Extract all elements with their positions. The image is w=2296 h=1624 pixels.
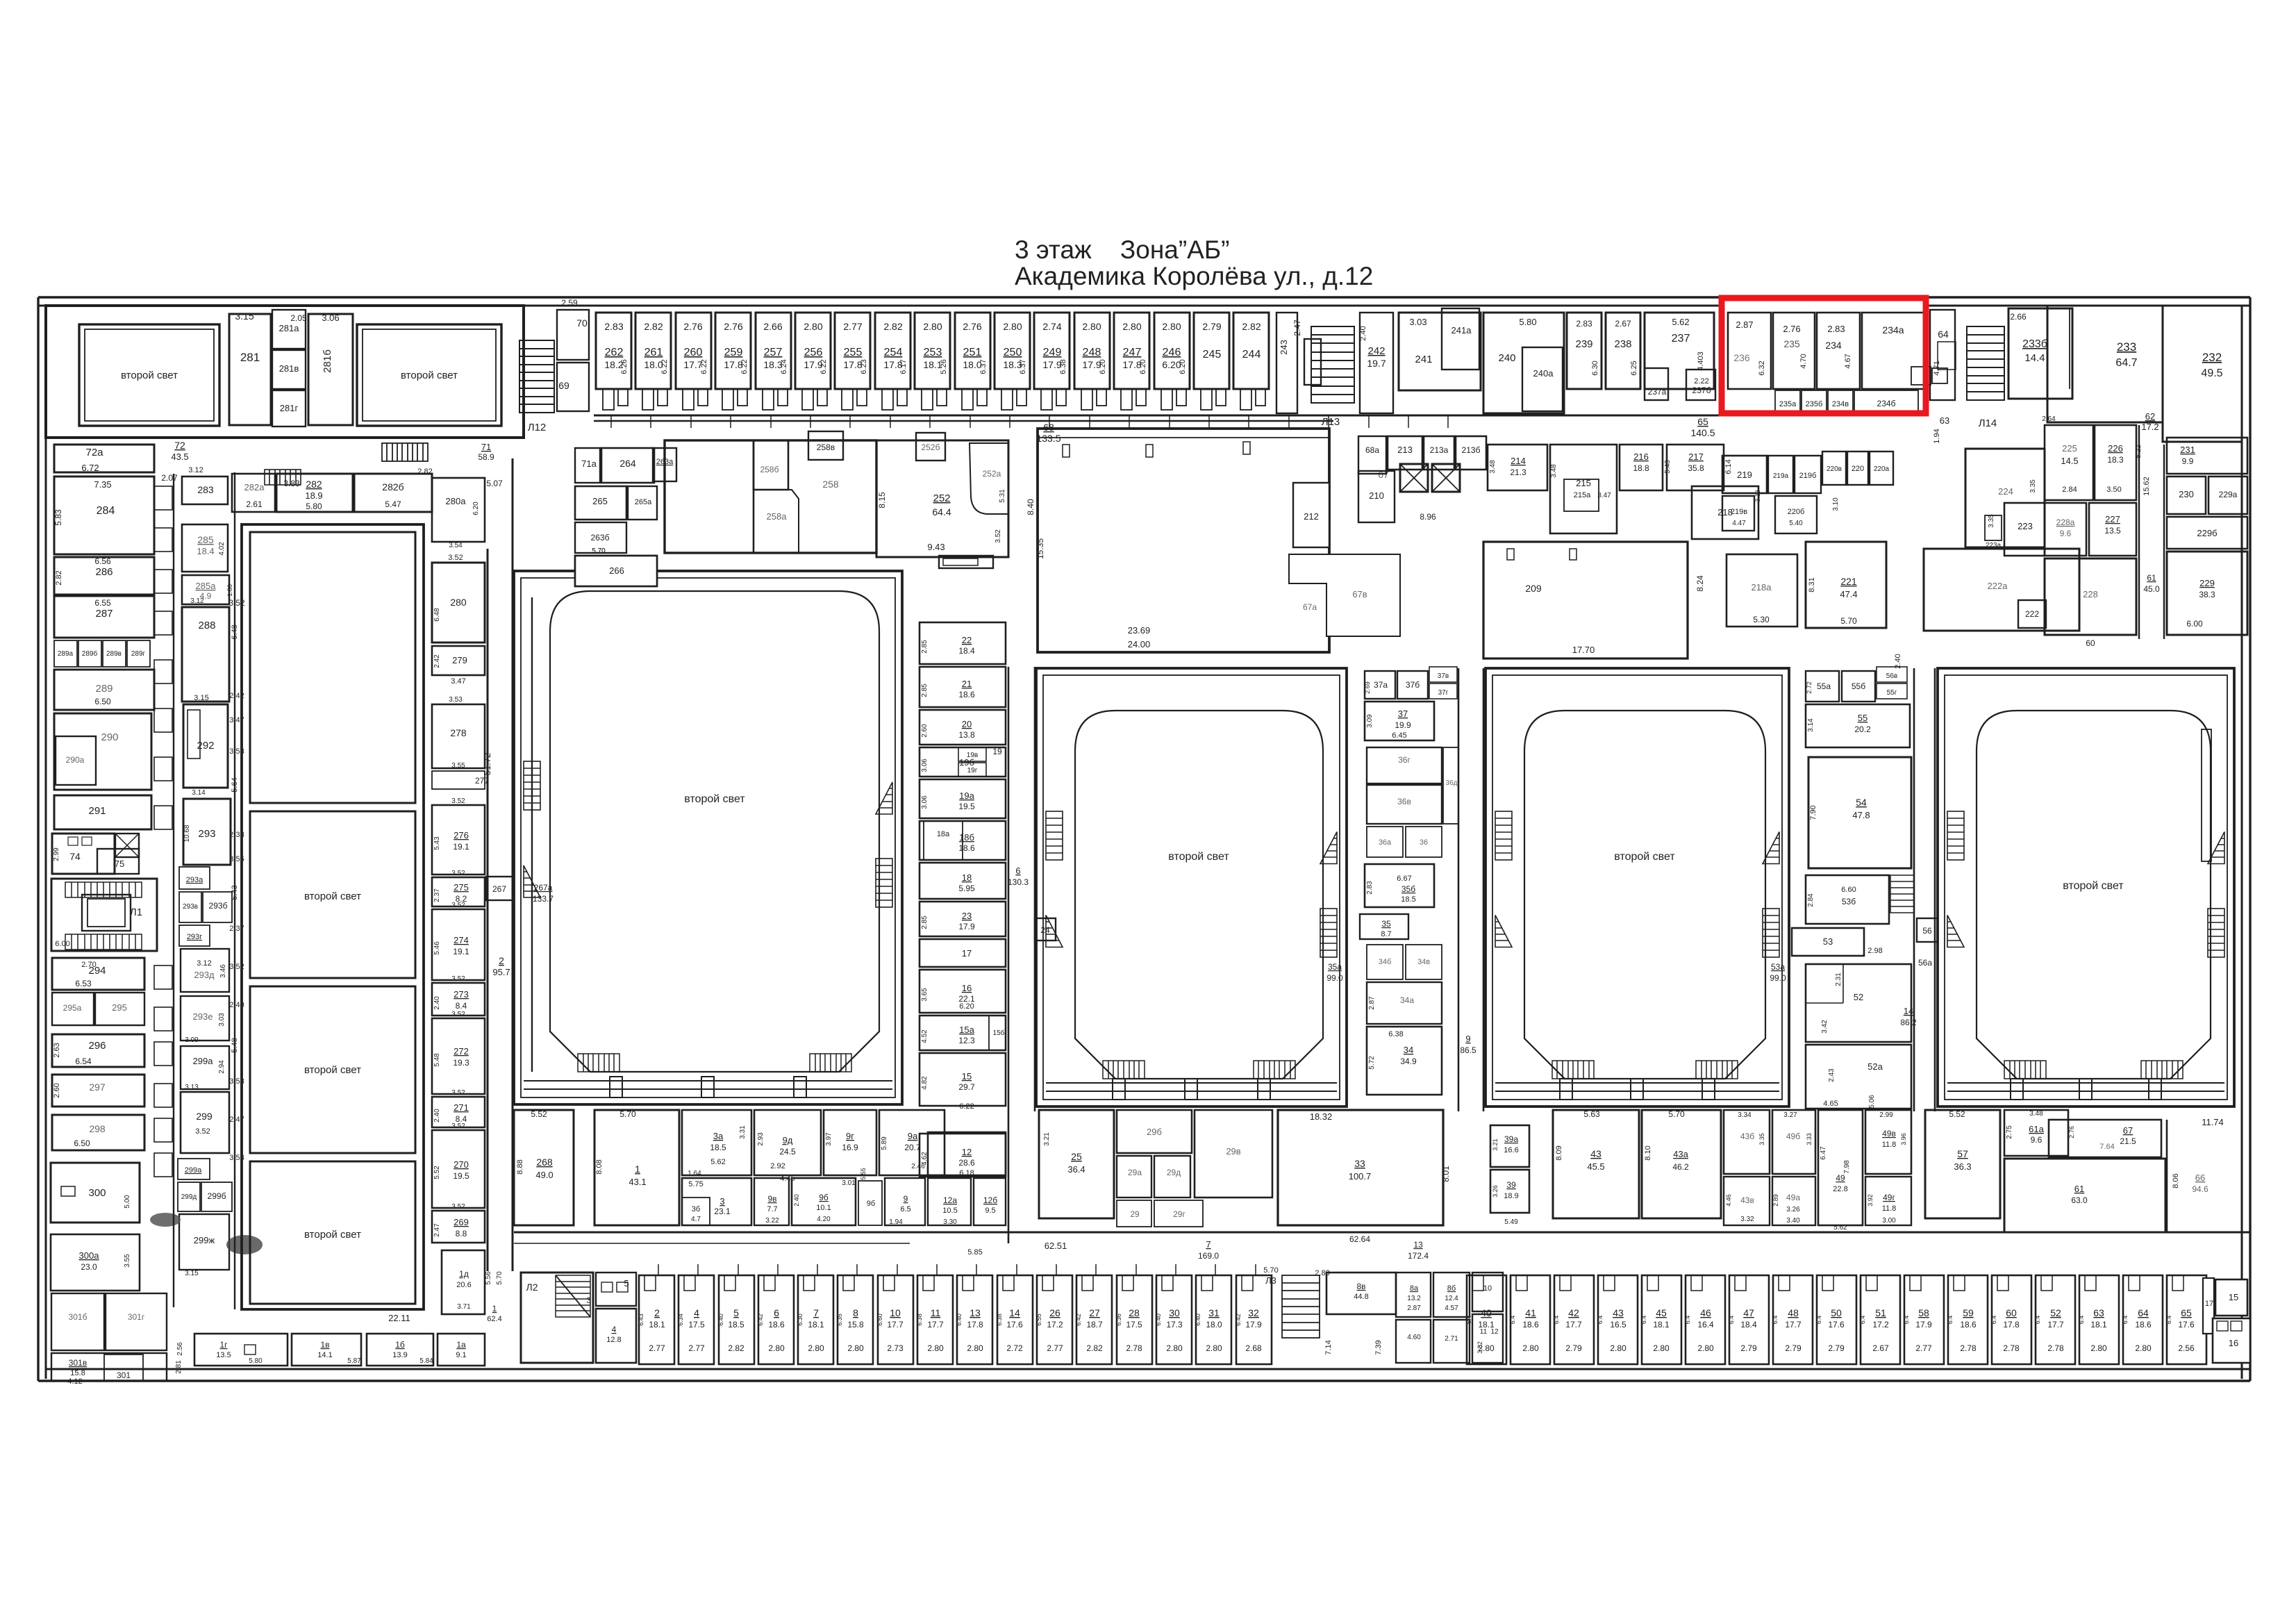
svg-text:5.48: 5.48 [433, 1053, 441, 1067]
svg-text:210: 210 [1369, 490, 1384, 501]
svg-text:2.70: 2.70 [81, 961, 96, 969]
svg-text:299: 299 [196, 1111, 213, 1122]
svg-text:241: 241 [1415, 354, 1432, 365]
svg-text:216: 216 [1633, 451, 1649, 462]
svg-text:39а: 39а [1504, 1134, 1518, 1144]
svg-text:61: 61 [2147, 573, 2156, 583]
svg-text:6.22: 6.22 [700, 359, 708, 374]
svg-text:2.80: 2.80 [847, 1343, 864, 1353]
svg-text:228: 228 [2083, 589, 2098, 599]
svg-text:37: 37 [1398, 709, 1408, 719]
svg-text:11: 11 [931, 1307, 941, 1318]
svg-text:224: 224 [1998, 486, 2013, 497]
svg-text:8.7: 8.7 [1381, 930, 1391, 938]
svg-text:6.48: 6.48 [433, 608, 441, 622]
svg-text:4.12: 4.12 [67, 1377, 82, 1386]
svg-text:34а: 34а [1400, 995, 1414, 1005]
svg-text:279: 279 [452, 655, 467, 665]
svg-text:19.1: 19.1 [453, 842, 469, 852]
svg-text:2.40: 2.40 [433, 996, 441, 1010]
svg-text:8в: 8в [1356, 1282, 1365, 1291]
svg-text:2.84: 2.84 [2062, 486, 2077, 494]
svg-text:19а: 19а [959, 790, 974, 801]
svg-text:63: 63 [2093, 1307, 2104, 1318]
svg-text:6.50: 6.50 [74, 1138, 90, 1148]
svg-text:19.9: 19.9 [1395, 720, 1411, 730]
svg-text:2.72: 2.72 [1806, 681, 1813, 694]
svg-text:6: 6 [774, 1307, 779, 1318]
svg-text:41: 41 [1525, 1307, 1536, 1318]
svg-text:2.83: 2.83 [1576, 319, 1592, 329]
svg-text:6.32: 6.32 [1758, 361, 1766, 375]
svg-text:293в: 293в [183, 903, 198, 911]
svg-text:293г: 293г [187, 933, 202, 941]
svg-text:5.70: 5.70 [592, 547, 606, 555]
svg-text:16: 16 [962, 983, 972, 993]
svg-text:99.0: 99.0 [1770, 973, 1786, 983]
svg-text:5.56: 5.56 [485, 1271, 492, 1285]
svg-text:2.82: 2.82 [728, 1343, 744, 1353]
svg-text:6.4: 6.4 [1859, 1316, 1866, 1325]
svg-text:21: 21 [962, 679, 972, 689]
svg-text:250: 250 [1004, 347, 1022, 358]
svg-text:6.20: 6.20 [1099, 359, 1107, 374]
svg-text:56: 56 [1922, 926, 1932, 936]
svg-text:15.62: 15.62 [2143, 477, 2151, 496]
svg-text:5.62: 5.62 [1672, 317, 1689, 327]
svg-text:15: 15 [2229, 1292, 2238, 1302]
svg-text:252б: 252б [922, 442, 940, 452]
svg-text:2.80: 2.80 [923, 321, 942, 332]
svg-text:18б: 18б [959, 832, 974, 843]
svg-text:3.30: 3.30 [943, 1218, 957, 1226]
svg-text:2.80: 2.80 [1003, 321, 1022, 332]
svg-text:3.12: 3.12 [190, 597, 204, 605]
svg-text:2.87: 2.87 [1407, 1304, 1421, 1312]
svg-text:286: 286 [95, 566, 113, 578]
svg-text:34б: 34б [1379, 958, 1392, 966]
svg-text:299а: 299а [193, 1056, 214, 1066]
svg-text:27: 27 [1089, 1307, 1100, 1318]
svg-text:3.21: 3.21 [1043, 1132, 1051, 1146]
svg-text:2.37: 2.37 [229, 925, 244, 933]
svg-text:2.60: 2.60 [921, 724, 929, 738]
svg-text:7.90: 7.90 [1809, 805, 1817, 820]
svg-text:9: 9 [1465, 1034, 1470, 1044]
svg-text:3.71: 3.71 [457, 1303, 471, 1311]
svg-text:2.82: 2.82 [55, 570, 63, 585]
svg-text:2.79: 2.79 [1740, 1343, 1757, 1353]
svg-text:95.7: 95.7 [492, 967, 510, 977]
svg-text:6.38: 6.38 [1059, 359, 1067, 374]
svg-text:2.80: 2.80 [2090, 1343, 2107, 1353]
svg-text:3.12: 3.12 [188, 466, 203, 474]
svg-text:2.77: 2.77 [649, 1343, 665, 1353]
svg-text:2.77: 2.77 [1047, 1343, 1063, 1353]
svg-text:2.64: 2.64 [2042, 415, 2056, 423]
svg-text:17.9: 17.9 [958, 922, 975, 931]
svg-text:215а: 215а [1574, 491, 1591, 499]
svg-text:1в: 1в [320, 1340, 329, 1350]
svg-text:2.80: 2.80 [1166, 1343, 1183, 1353]
svg-text:2.82: 2.82 [883, 321, 902, 332]
svg-text:18.4: 18.4 [1740, 1320, 1757, 1329]
svg-text:4.70: 4.70 [1799, 354, 1808, 368]
svg-text:13.5: 13.5 [216, 1351, 231, 1359]
svg-text:3.52: 3.52 [451, 797, 465, 805]
svg-text:2.40: 2.40 [229, 1001, 244, 1009]
svg-text:12.4: 12.4 [1445, 1295, 1458, 1302]
svg-text:5.00: 5.00 [124, 1195, 131, 1209]
svg-text:2.80: 2.80 [2135, 1343, 2152, 1353]
svg-text:6.38: 6.38 [916, 1314, 923, 1326]
svg-text:66: 66 [2195, 1173, 2205, 1183]
svg-text:54: 54 [1856, 797, 1867, 808]
svg-text:2.76: 2.76 [724, 321, 742, 332]
svg-text:3.10: 3.10 [1832, 497, 1840, 511]
svg-text:17.3: 17.3 [1166, 1320, 1183, 1329]
svg-text:289а: 289а [58, 650, 74, 658]
svg-text:6.4: 6.4 [2165, 1316, 2172, 1325]
svg-text:12: 12 [962, 1147, 972, 1157]
svg-text:281в: 281в [279, 363, 299, 374]
svg-text:100.7: 100.7 [1349, 1171, 1372, 1182]
svg-text:второй свет: второй свет [304, 1064, 361, 1076]
svg-text:64: 64 [1938, 329, 1949, 340]
svg-text:249: 249 [1043, 347, 1062, 358]
svg-text:8.31: 8.31 [1808, 577, 1816, 592]
svg-text:35.8: 35.8 [1688, 463, 1704, 473]
svg-text:236: 236 [1733, 352, 1750, 363]
svg-text:239: 239 [1575, 338, 1592, 350]
svg-text:9г: 9г [846, 1131, 854, 1141]
svg-text:9.43: 9.43 [927, 542, 945, 552]
svg-text:268: 268 [536, 1157, 553, 1168]
svg-text:24: 24 [1040, 925, 1050, 935]
svg-text:3.53: 3.53 [229, 747, 244, 756]
svg-text:2.75: 2.75 [2006, 1125, 2013, 1139]
svg-text:237а: 237а [1648, 387, 1667, 397]
svg-text:2.78: 2.78 [2003, 1343, 2020, 1353]
svg-text:5.80: 5.80 [306, 502, 322, 511]
svg-text:6.53: 6.53 [75, 979, 92, 988]
svg-text:94.6: 94.6 [2192, 1184, 2208, 1194]
svg-text:6.4: 6.4 [1772, 1316, 1779, 1325]
svg-text:20: 20 [962, 719, 972, 729]
svg-text:9б: 9б [819, 1193, 829, 1202]
svg-text:219: 219 [1737, 470, 1752, 480]
svg-text:47.4: 47.4 [1840, 589, 1857, 599]
svg-text:1.86: 1.86 [226, 584, 233, 597]
svg-text:3.06: 3.06 [322, 313, 339, 323]
svg-text:10.1: 10.1 [816, 1204, 831, 1212]
svg-text:6.22: 6.22 [740, 359, 749, 374]
svg-text:263б: 263б [591, 533, 610, 542]
svg-text:58: 58 [1918, 1307, 1929, 1318]
svg-text:6.55: 6.55 [1035, 1314, 1042, 1326]
svg-text:64.7: 64.7 [2115, 357, 2137, 369]
svg-text:17.2: 17.2 [2141, 422, 2158, 432]
svg-text:37а: 37а [1374, 680, 1388, 690]
svg-text:12а: 12а [943, 1195, 957, 1205]
svg-text:256: 256 [804, 347, 823, 358]
svg-text:23: 23 [962, 911, 972, 921]
svg-text:6.23: 6.23 [860, 359, 868, 374]
svg-text:49б: 49б [1786, 1132, 1800, 1141]
svg-text:5.84: 5.84 [419, 1357, 433, 1365]
svg-text:259: 259 [724, 347, 743, 358]
svg-text:234: 234 [1825, 340, 1842, 351]
svg-text:2.46: 2.46 [911, 1163, 925, 1170]
svg-text:5: 5 [733, 1307, 739, 1318]
svg-text:3.26: 3.26 [1492, 1185, 1499, 1198]
svg-text:281б: 281б [322, 349, 333, 373]
svg-text:21.5: 21.5 [2120, 1136, 2136, 1146]
svg-text:6.4: 6.4 [1553, 1316, 1560, 1325]
svg-text:301в: 301в [69, 1358, 87, 1368]
svg-text:272: 272 [454, 1046, 469, 1057]
svg-text:36.4: 36.4 [1067, 1164, 1085, 1175]
svg-text:17.9: 17.9 [1245, 1320, 1262, 1329]
svg-text:второй свет: второй свет [304, 1229, 361, 1241]
svg-text:второй свет: второй свет [2063, 880, 2124, 892]
svg-text:9.1: 9.1 [456, 1351, 466, 1359]
svg-text:3.21: 3.21 [1492, 1138, 1499, 1151]
svg-text:246: 246 [1163, 347, 1181, 358]
svg-text:3.55: 3.55 [229, 855, 244, 863]
svg-text:16.5: 16.5 [1610, 1320, 1627, 1329]
svg-text:8.08: 8.08 [595, 1159, 604, 1174]
svg-text:2.63: 2.63 [53, 1043, 61, 1057]
svg-text:второй свет: второй свет [684, 793, 745, 805]
svg-text:60: 60 [2006, 1307, 2017, 1318]
svg-text:40: 40 [1481, 1307, 1492, 1318]
svg-text:24.00: 24.00 [1128, 639, 1151, 649]
svg-text:2.89: 2.89 [1772, 1194, 1779, 1207]
svg-text:5.43: 5.43 [433, 836, 441, 850]
svg-text:3: 3 [587, 1295, 592, 1305]
svg-text:6.43: 6.43 [638, 1314, 644, 1326]
svg-text:11.8: 11.8 [1882, 1204, 1897, 1213]
svg-text:298: 298 [89, 1123, 106, 1134]
svg-text:2.99: 2.99 [53, 847, 60, 861]
svg-text:8.01: 8.01 [1441, 1166, 1451, 1182]
svg-text:12.8: 12.8 [606, 1336, 621, 1344]
svg-text:2.73: 2.73 [887, 1343, 904, 1353]
svg-text:6.38: 6.38 [1388, 1030, 1403, 1038]
svg-text:2.77: 2.77 [1915, 1343, 1932, 1353]
svg-text:6.24: 6.24 [780, 359, 788, 374]
svg-text:9б: 9б [867, 1200, 875, 1208]
svg-text:49в: 49в [1882, 1129, 1896, 1138]
svg-text:296: 296 [88, 1040, 106, 1052]
svg-text:2.37: 2.37 [433, 888, 441, 902]
svg-text:19.7: 19.7 [1367, 358, 1386, 369]
svg-text:20.2: 20.2 [1854, 724, 1871, 734]
svg-text:5.80: 5.80 [249, 1357, 263, 1365]
svg-text:37в: 37в [1438, 672, 1449, 680]
svg-text:2.66: 2.66 [2010, 312, 2027, 322]
svg-text:18.1: 18.1 [2090, 1320, 2107, 1329]
svg-text:219а: 219а [1773, 472, 1789, 480]
svg-text:17.7: 17.7 [2047, 1320, 2064, 1329]
svg-text:6.14: 6.14 [1724, 459, 1733, 474]
svg-text:2.31: 2.31 [1835, 972, 1842, 986]
svg-text:18.5: 18.5 [1401, 895, 1415, 904]
svg-text:47: 47 [1743, 1307, 1754, 1318]
svg-text:37б: 37б [1406, 680, 1420, 690]
svg-text:4: 4 [612, 1325, 617, 1334]
svg-text:223: 223 [2018, 521, 2033, 531]
svg-text:293а: 293а [186, 876, 203, 884]
svg-text:29в: 29в [1226, 1146, 1240, 1157]
svg-text:299д: 299д [181, 1193, 197, 1201]
svg-text:2.83: 2.83 [604, 321, 623, 332]
svg-text:2.79: 2.79 [1785, 1343, 1802, 1353]
svg-text:6.22: 6.22 [959, 1102, 974, 1111]
svg-text:59: 59 [1963, 1307, 1974, 1318]
svg-text:222: 222 [2025, 609, 2039, 619]
svg-text:1.94: 1.94 [889, 1218, 903, 1226]
svg-text:3.15: 3.15 [194, 694, 208, 702]
svg-text:5.52: 5.52 [531, 1109, 547, 1119]
svg-text:52: 52 [1854, 992, 1863, 1002]
svg-text:301г: 301г [128, 1312, 145, 1322]
svg-text:2.80: 2.80 [1206, 1343, 1222, 1353]
svg-text:2.42: 2.42 [229, 692, 244, 700]
svg-text:52: 52 [2050, 1307, 2061, 1318]
svg-text:2.82: 2.82 [1086, 1343, 1103, 1353]
svg-text:37г: 37г [1438, 689, 1449, 697]
svg-text:261: 261 [644, 347, 663, 358]
svg-text:280: 280 [450, 597, 467, 608]
svg-text:4.47: 4.47 [1732, 520, 1746, 527]
svg-text:2.82: 2.82 [644, 321, 663, 332]
svg-text:17: 17 [2205, 1300, 2213, 1308]
svg-text:2.79: 2.79 [1828, 1343, 1845, 1353]
svg-text:2.80: 2.80 [768, 1343, 785, 1353]
svg-text:6.72: 6.72 [81, 463, 99, 473]
svg-text:17.70: 17.70 [1572, 645, 1595, 655]
svg-text:6.25: 6.25 [1630, 361, 1638, 375]
svg-text:39: 39 [1506, 1180, 1516, 1190]
svg-text:233б: 233б [2022, 338, 2047, 350]
svg-text:4.71: 4.71 [1933, 361, 1941, 375]
svg-text:281г: 281г [280, 403, 299, 413]
svg-text:293б: 293б [209, 901, 228, 911]
svg-text:2: 2 [499, 955, 504, 966]
svg-text:252а: 252а [983, 469, 1001, 479]
svg-text:2.47: 2.47 [229, 1116, 244, 1124]
svg-text:2.80: 2.80 [808, 1343, 824, 1353]
svg-text:18.7: 18.7 [1086, 1320, 1103, 1329]
svg-text:140.5: 140.5 [1690, 427, 1715, 438]
svg-text:Л1: Л1 [130, 906, 142, 918]
svg-text:228а: 228а [2056, 517, 2075, 527]
svg-text:5.70: 5.70 [619, 1109, 636, 1119]
svg-text:284: 284 [97, 505, 115, 517]
svg-text:6: 6 [1015, 865, 1020, 876]
svg-text:5.07: 5.07 [486, 479, 503, 488]
svg-text:300: 300 [88, 1187, 106, 1199]
svg-text:2.22: 2.22 [1694, 377, 1708, 386]
svg-text:20.6: 20.6 [456, 1281, 471, 1289]
svg-text:2.80: 2.80 [1522, 1343, 1539, 1353]
svg-text:19: 19 [992, 747, 1002, 756]
svg-text:26: 26 [1049, 1307, 1060, 1318]
svg-text:2.47: 2.47 [433, 1223, 441, 1237]
svg-text:второй свет: второй свет [401, 370, 458, 381]
svg-text:258в: 258в [817, 442, 835, 452]
svg-text:14: 14 [1009, 1307, 1020, 1318]
svg-text:18.1: 18.1 [649, 1320, 665, 1329]
svg-text:56а: 56а [1918, 958, 1932, 968]
svg-text:5.06: 5.06 [1868, 1095, 1876, 1109]
svg-text:6.30: 6.30 [797, 1314, 804, 1326]
svg-text:221: 221 [1840, 576, 1857, 587]
svg-text:18.3: 18.3 [2107, 455, 2124, 465]
svg-text:232: 232 [2202, 351, 2222, 364]
svg-text:299б: 299б [208, 1191, 226, 1201]
svg-text:7: 7 [1206, 1239, 1211, 1250]
svg-text:2.76: 2.76 [963, 321, 981, 332]
svg-text:235б: 235б [1806, 400, 1823, 408]
svg-text:2.80: 2.80 [1653, 1343, 1670, 1353]
svg-text:240: 240 [1498, 352, 1515, 364]
svg-text:282: 282 [306, 479, 322, 490]
svg-text:289б: 289б [82, 649, 98, 658]
svg-text:4.52: 4.52 [921, 1029, 929, 1043]
svg-text:6.55: 6.55 [94, 598, 111, 608]
svg-text:3.48: 3.48 [1550, 464, 1558, 478]
svg-text:31: 31 [1208, 1307, 1220, 1318]
svg-text:2.87: 2.87 [1736, 320, 1753, 330]
svg-text:2.40: 2.40 [793, 1194, 800, 1207]
svg-text:9.6: 9.6 [2060, 529, 2072, 538]
svg-text:6.36: 6.36 [1115, 1314, 1122, 1326]
svg-text:23.0: 23.0 [81, 1262, 97, 1272]
svg-text:5.70: 5.70 [496, 1271, 504, 1285]
svg-text:2.98: 2.98 [1867, 947, 1882, 955]
svg-text:44.8: 44.8 [1354, 1293, 1368, 1301]
svg-text:67: 67 [2123, 1125, 2133, 1136]
svg-text:18.6: 18.6 [1522, 1320, 1539, 1329]
svg-text:3.06: 3.06 [921, 795, 929, 809]
svg-text:14.5: 14.5 [2061, 456, 2078, 466]
svg-text:8.88: 8.88 [516, 1159, 524, 1174]
svg-text:5.62: 5.62 [1833, 1224, 1847, 1232]
svg-text:267а: 267а [534, 883, 553, 893]
svg-text:8.40: 8.40 [1026, 499, 1035, 515]
svg-text:2.80: 2.80 [1610, 1343, 1627, 1353]
svg-text:18.1: 18.1 [1653, 1320, 1670, 1329]
svg-text:5.46: 5.46 [433, 941, 441, 955]
svg-text:217: 217 [1688, 451, 1704, 462]
svg-text:23.1: 23.1 [714, 1207, 731, 1216]
svg-text:3.06: 3.06 [921, 759, 929, 772]
svg-text:19.5: 19.5 [958, 802, 975, 811]
svg-text:17.6: 17.6 [1828, 1320, 1845, 1329]
svg-text:6.4: 6.4 [2034, 1316, 2041, 1325]
svg-text:234б: 234б [1877, 399, 1896, 408]
svg-text:3.14: 3.14 [1807, 718, 1815, 732]
svg-text:22: 22 [962, 635, 972, 645]
svg-text:209: 209 [1525, 583, 1542, 594]
svg-text:51: 51 [1875, 1307, 1886, 1318]
svg-text:3.52: 3.52 [195, 1127, 210, 1136]
svg-text:2.99: 2.99 [1879, 1111, 1893, 1119]
svg-text:17.7: 17.7 [1565, 1320, 1582, 1329]
